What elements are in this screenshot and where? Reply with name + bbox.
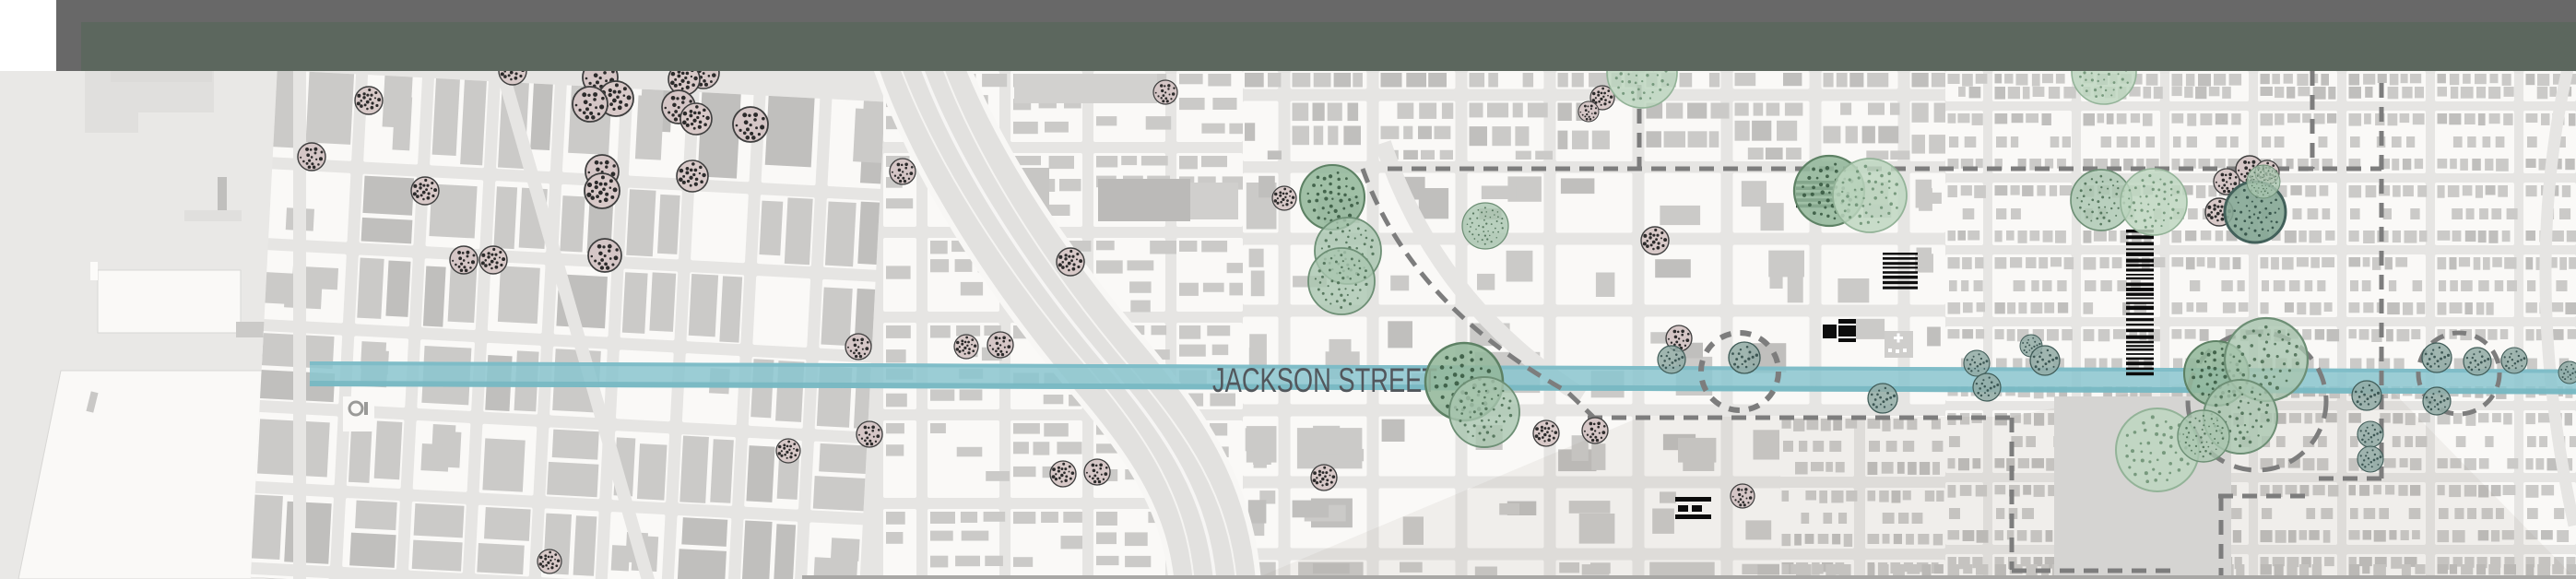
svg-text:JACKSON STREET: JACKSON STREET xyxy=(1212,360,1437,399)
